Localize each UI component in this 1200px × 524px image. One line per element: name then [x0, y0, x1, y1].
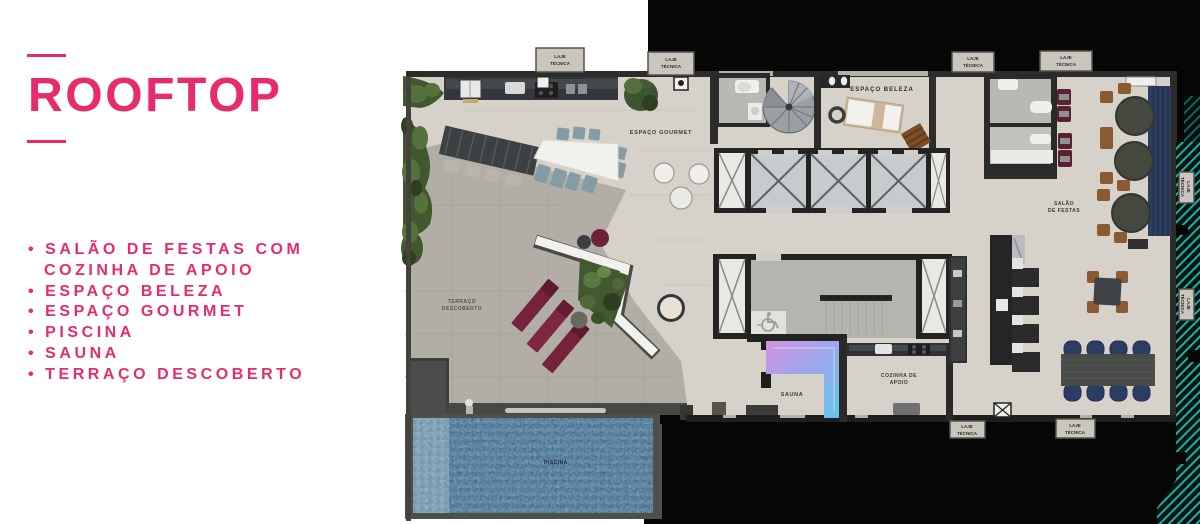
svg-text:COZINHA DE: COZINHA DE — [881, 373, 917, 379]
svg-text:TÉCNICA: TÉCNICA — [963, 61, 984, 68]
svg-text:LAJE: LAJE — [1060, 55, 1072, 60]
svg-text:TÉCNICA: TÉCNICA — [957, 429, 978, 436]
svg-text:ESPAÇO GOURMET: ESPAÇO GOURMET — [630, 130, 692, 136]
svg-text:TÉCNICA: TÉCNICA — [1065, 428, 1086, 435]
svg-text:SAUNA: SAUNA — [781, 392, 804, 398]
svg-text:SALÃO: SALÃO — [1054, 200, 1074, 207]
svg-text:DESCOBERTO: DESCOBERTO — [442, 306, 482, 312]
svg-text:TÉCNICA: TÉCNICA — [550, 59, 571, 66]
svg-text:TÉCNICA: TÉCNICA — [1180, 177, 1187, 198]
svg-text:TÉCNICA: TÉCNICA — [661, 62, 682, 69]
svg-text:TÉCNICA: TÉCNICA — [1056, 60, 1077, 67]
svg-text:ESPAÇO BELEZA: ESPAÇO BELEZA — [850, 87, 914, 93]
svg-text:LAJE: LAJE — [1186, 298, 1191, 310]
svg-text:LAJE: LAJE — [665, 57, 677, 62]
svg-text:LAJE: LAJE — [1186, 181, 1191, 193]
svg-text:LAJE: LAJE — [1069, 423, 1081, 428]
svg-text:LAJE: LAJE — [961, 424, 973, 429]
svg-text:TÉCNICA: TÉCNICA — [1180, 294, 1187, 315]
svg-text:LAJE: LAJE — [554, 54, 566, 59]
svg-text:TERRAÇO: TERRAÇO — [448, 299, 476, 305]
svg-text:APOIO: APOIO — [890, 380, 909, 386]
svg-text:LAJE: LAJE — [967, 56, 979, 61]
svg-text:DE FESTAS: DE FESTAS — [1048, 208, 1080, 214]
svg-text:PISCINA: PISCINA — [544, 460, 568, 466]
